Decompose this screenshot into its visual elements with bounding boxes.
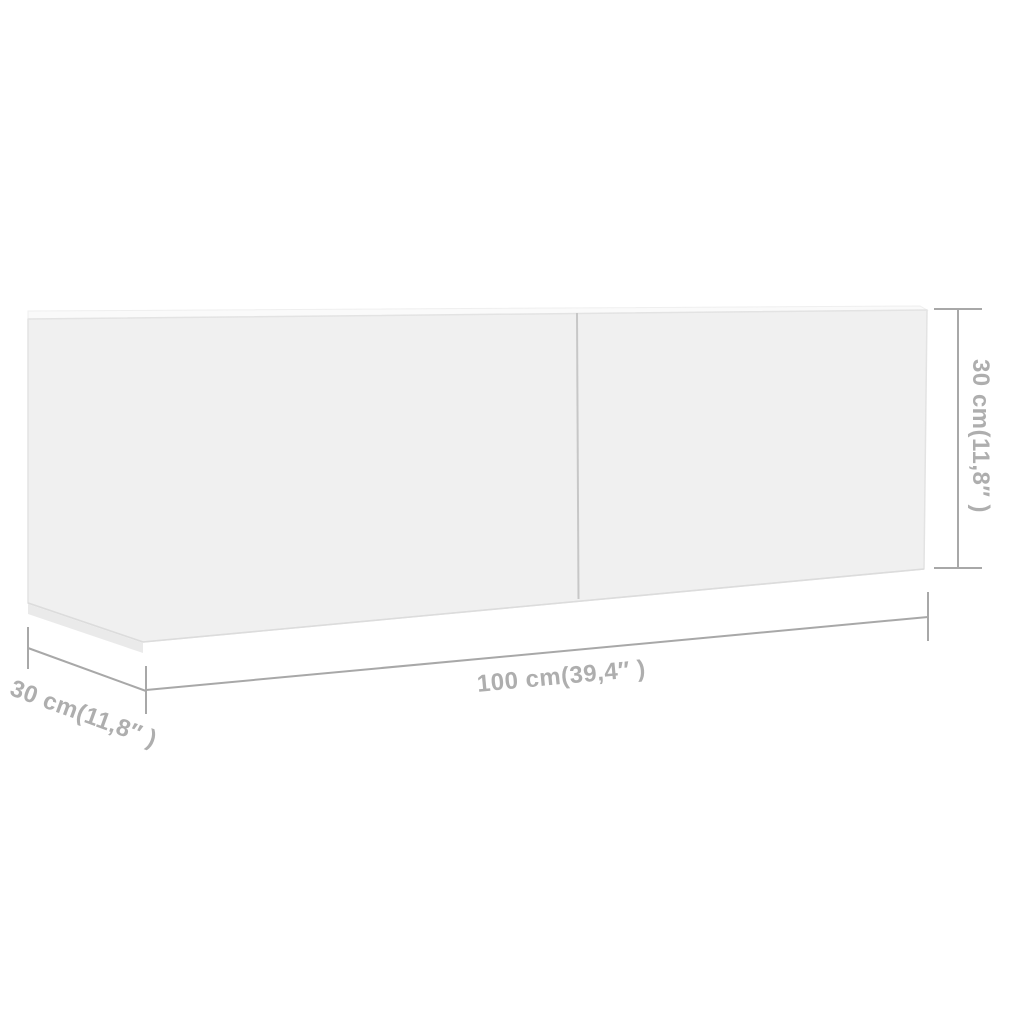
cabinet bbox=[28, 306, 927, 653]
height-dimension-label: 30 cm(11,8″ ) bbox=[967, 359, 994, 513]
dimension-diagram-canvas: 100 cm(39,4″ ) 30 cm(11,8″ ) 30 cm(11,8″… bbox=[0, 0, 1024, 1024]
width-dimension-label: 100 cm(39,4″ ) bbox=[476, 655, 647, 698]
depth-dimension-label: 30 cm(11,8″ ) bbox=[7, 675, 161, 753]
height-dimension: 30 cm(11,8″ ) bbox=[934, 309, 994, 568]
product-dimension-diagram: 100 cm(39,4″ ) 30 cm(11,8″ ) 30 cm(11,8″… bbox=[0, 0, 1024, 1024]
depth-dimension-line bbox=[28, 648, 146, 691]
cabinet-front-face bbox=[28, 310, 927, 642]
